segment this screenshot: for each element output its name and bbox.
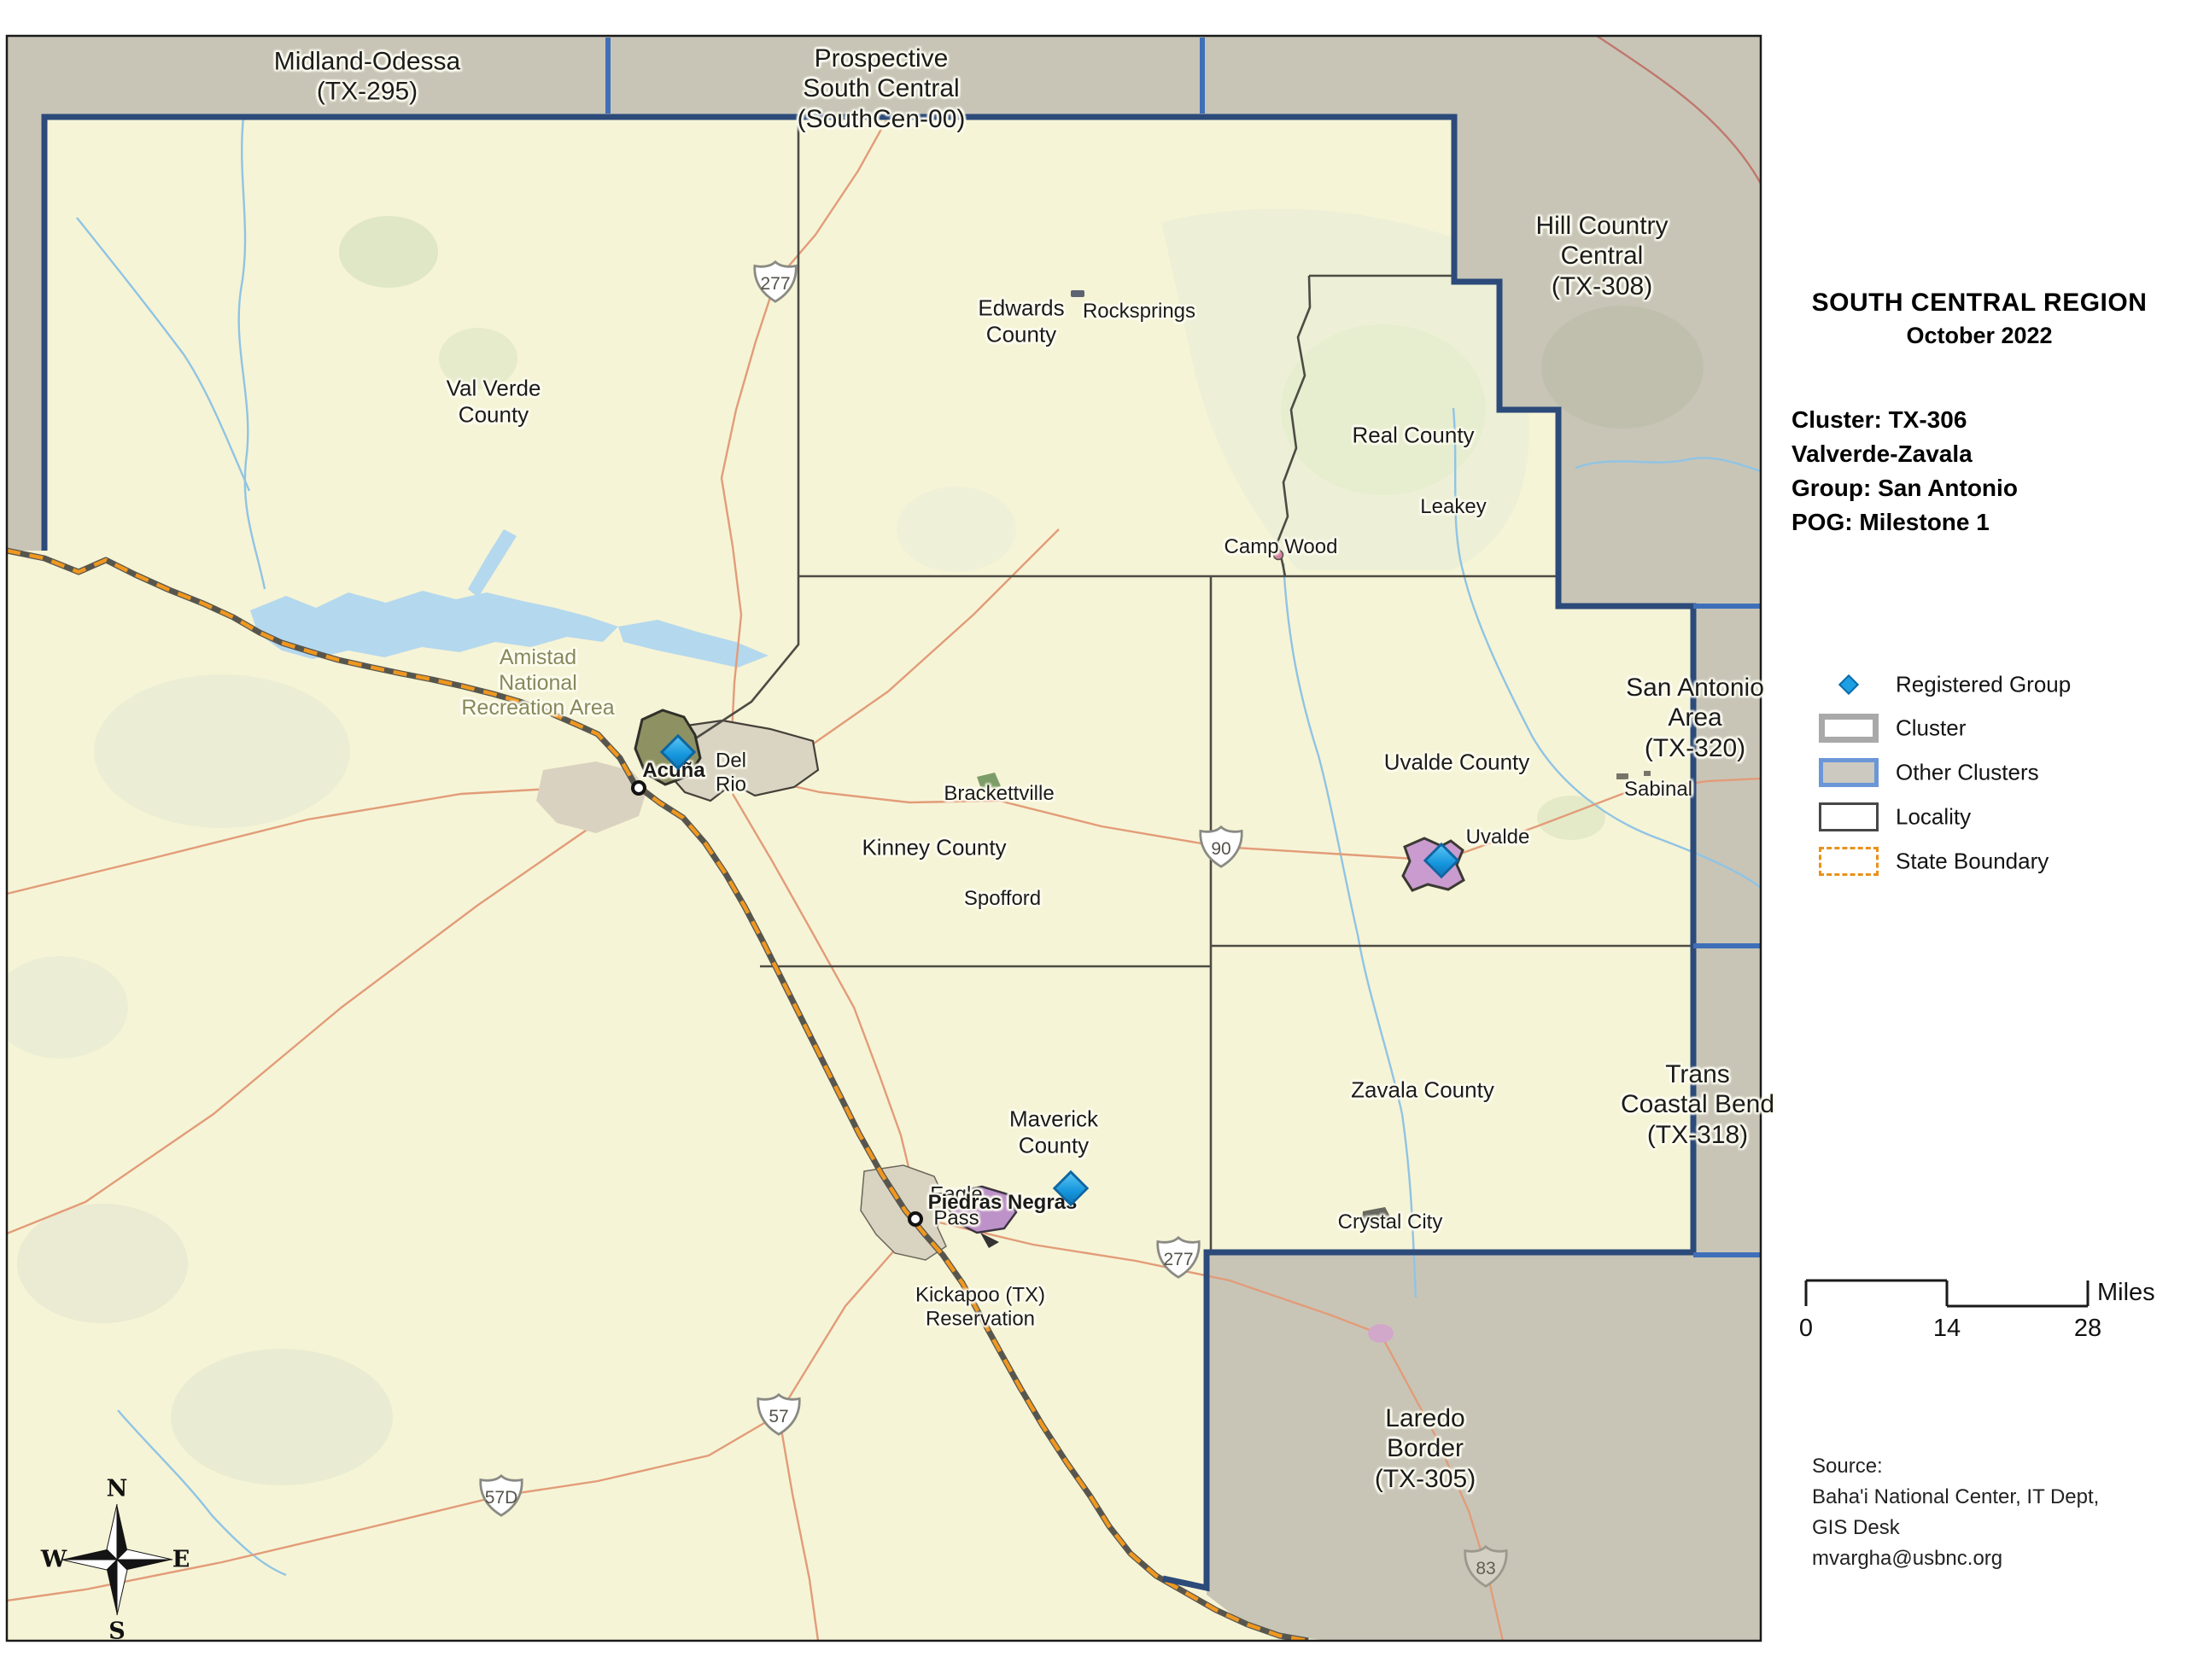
legend-cluster-label: Cluster	[1896, 715, 1966, 742]
legend-registered-group-label: Registered Group	[1896, 672, 2071, 698]
source-desk: GIS Desk	[1812, 1513, 2099, 1543]
county-label-real: Real County	[1352, 423, 1474, 449]
city-marker-eagle-pass	[908, 1211, 923, 1227]
highway-shield-277-north: 277	[751, 260, 800, 304]
legend-cluster-swatch	[1819, 714, 1879, 743]
locality-rocksprings	[1071, 290, 1084, 297]
source-block: Source: Baha'i National Center, IT Dept,…	[1812, 1451, 2099, 1574]
place-label-leakey: Leakey	[1420, 495, 1486, 519]
county-label-uvalde: Uvalde County	[1384, 750, 1530, 776]
scale-zero-label: 0	[1799, 1315, 1813, 1343]
source-org: Baha'i National Center, IT Dept,	[1812, 1482, 2099, 1513]
place-label-del-rio: Del Rio	[716, 750, 746, 798]
cluster-label-hill-country-central: Hill Country Central (TX-308)	[1535, 211, 1668, 301]
compass-west-label: W	[41, 1547, 67, 1573]
cluster-label-laredo-border: Laredo Border (TX-305)	[1375, 1403, 1476, 1494]
place-label-crystal-city: Crystal City	[1338, 1210, 1443, 1234]
place-label-camp-wood: Camp Wood	[1225, 535, 1338, 559]
legend-other-clusters-swatch	[1819, 758, 1879, 787]
cluster-label-san-antonio-area: San Antonio Area (TX-320)	[1626, 673, 1764, 763]
map-canvas	[0, 0, 2186, 1680]
cluster-info-block: Cluster: TX-306 Valverde-Zavala Group: S…	[1791, 403, 2018, 540]
cluster-label-prospective-south-central: Prospective South Central (SouthCen-00)	[798, 44, 966, 134]
place-label-kickapoo-reservation: Kickapoo (TX) Reservation	[915, 1284, 1045, 1333]
cluster-id-line: Cluster: TX-306	[1791, 403, 2018, 437]
area-label-amistad-nra: Amistad National Recreation Area	[461, 645, 614, 721]
legend-other-clusters-label: Other Clusters	[1896, 760, 2039, 786]
source-email: mvargha@usbnc.org	[1812, 1543, 2099, 1574]
county-label-zavala: Zavala County	[1351, 1077, 1494, 1104]
place-label-uvalde-city: Uvalde	[1466, 825, 1530, 849]
county-label-edwards: Edwards County	[978, 295, 1064, 347]
county-label-kinney: Kinney County	[862, 835, 1006, 861]
locality-la-pryor	[1368, 1324, 1394, 1343]
highway-shield-57: 57	[754, 1392, 804, 1437]
legend-state-boundary-label: State Boundary	[1896, 849, 2049, 875]
page: Midland-Odessa (TX-295) Prospective Sout…	[0, 0, 2186, 1680]
cluster-label-midland-odessa: Midland-Odessa (TX-295)	[274, 47, 460, 108]
compass-north-label: N	[107, 1476, 128, 1502]
scale-bar	[1806, 1280, 2088, 1306]
pog-line: POG: Milestone 1	[1791, 505, 2018, 540]
place-label-spofford: Spofford	[964, 887, 1041, 911]
compass-east-label: E	[172, 1547, 190, 1573]
place-label-sabinal: Sabinal	[1624, 778, 1692, 802]
source-heading: Source:	[1812, 1451, 2099, 1482]
scale-max-label: 28	[2074, 1315, 2101, 1343]
cluster-label-trans-coastal-bend: Trans Coastal Bend (TX-318)	[1621, 1059, 1774, 1150]
scale-unit-label: Miles	[2097, 1279, 2155, 1307]
place-label-rocksprings: Rocksprings	[1083, 300, 1195, 324]
county-label-val-verde: Val Verde County	[447, 375, 541, 427]
group-line: Group: San Antonio	[1791, 471, 2018, 505]
highway-shield-83: 83	[1461, 1544, 1511, 1589]
gray-terrain	[1541, 306, 1704, 429]
page-subtitle: October 2022	[1785, 323, 2174, 349]
legend-locality-swatch	[1819, 802, 1879, 831]
highway-shield-57d: 57D	[476, 1473, 526, 1518]
legend-locality-label: Locality	[1896, 804, 1971, 831]
highway-shield-90: 90	[1196, 825, 1246, 869]
place-label-brackettville: Brackettville	[944, 782, 1054, 806]
place-label-piedras-negras: Piedras Negras	[928, 1191, 1078, 1215]
highway-shield-277-south: 277	[1154, 1235, 1203, 1280]
scale-mid-label: 14	[1933, 1315, 1961, 1343]
map-title-block: SOUTH CENTRAL REGION October 2022	[1785, 289, 2174, 349]
cluster-name-line: Valverde-Zavala	[1791, 437, 2018, 471]
legend-state-boundary-swatch	[1819, 847, 1879, 876]
city-marker-acuna	[631, 780, 646, 796]
page-title: SOUTH CENTRAL REGION	[1785, 289, 2174, 318]
compass-south-label: S	[108, 1619, 126, 1645]
county-label-maverick: Maverick County	[1009, 1105, 1098, 1158]
